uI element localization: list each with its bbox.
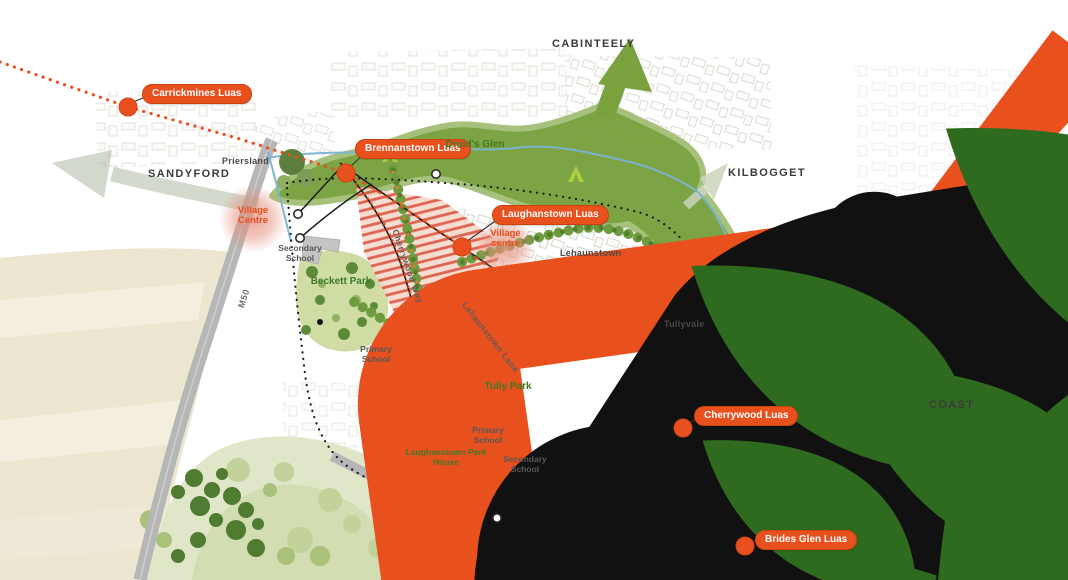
- district-label-sandyford: SANDYFORD: [148, 168, 230, 180]
- football-icon: [317, 319, 323, 325]
- park-label-beckett-park: Beckett Park: [310, 276, 372, 287]
- luas-stop-dot-carrickmines[interactable]: [119, 98, 137, 116]
- luas-stop-dot-laughanstown[interactable]: [453, 238, 471, 256]
- school-label-secondary-west: Secondary School: [266, 244, 334, 264]
- cherrywood-masterplan-map: Carrickmines Luas Brennanstown Luas Laug…: [0, 0, 1068, 580]
- school-label-primary-central: Primary School: [346, 345, 406, 365]
- park-label-druids-glen: Druid's Glen: [425, 139, 525, 150]
- park-label-laughanstown-park-house: Laughanstown Park House: [398, 448, 494, 467]
- place-label-tullyvale: Tullyvale: [664, 319, 705, 329]
- place-label-lehaunstown: Lehaunstown: [560, 248, 621, 258]
- luas-stop-badge-brides-glen[interactable]: Brides Glen Luas: [755, 530, 857, 550]
- park-label-tully-park: Tully Park: [474, 381, 542, 392]
- school-label-primary-south: Primary School: [458, 426, 518, 446]
- luas-stop-badge-cherrywood[interactable]: Cherrywood Luas: [694, 406, 798, 426]
- village-centre-label-laughanstown: Village centre: [478, 229, 533, 250]
- place-label-priersland: Priersland: [222, 156, 269, 166]
- luas-stop-dot-brides-glen[interactable]: [736, 537, 754, 555]
- village-centre-label-sandyford: Village Centre: [225, 206, 281, 227]
- school-label-secondary-south: Secondary School: [492, 455, 558, 475]
- luas-stop-dot-brennanstown[interactable]: [337, 164, 355, 182]
- district-label-kilbogget: KILBOGGET: [728, 167, 806, 179]
- district-label-coast: COAST: [929, 399, 975, 411]
- village-centre-label-central: Village centre: [399, 337, 455, 358]
- luas-stop-badge-laughanstown[interactable]: Laughanstown Luas: [492, 205, 609, 225]
- luas-stop-dot-cherrywood[interactable]: [674, 419, 692, 437]
- luas-stop-badge-carrickmines[interactable]: Carrickmines Luas: [142, 84, 252, 104]
- district-label-cabinteely: CABINTEELY: [552, 38, 635, 50]
